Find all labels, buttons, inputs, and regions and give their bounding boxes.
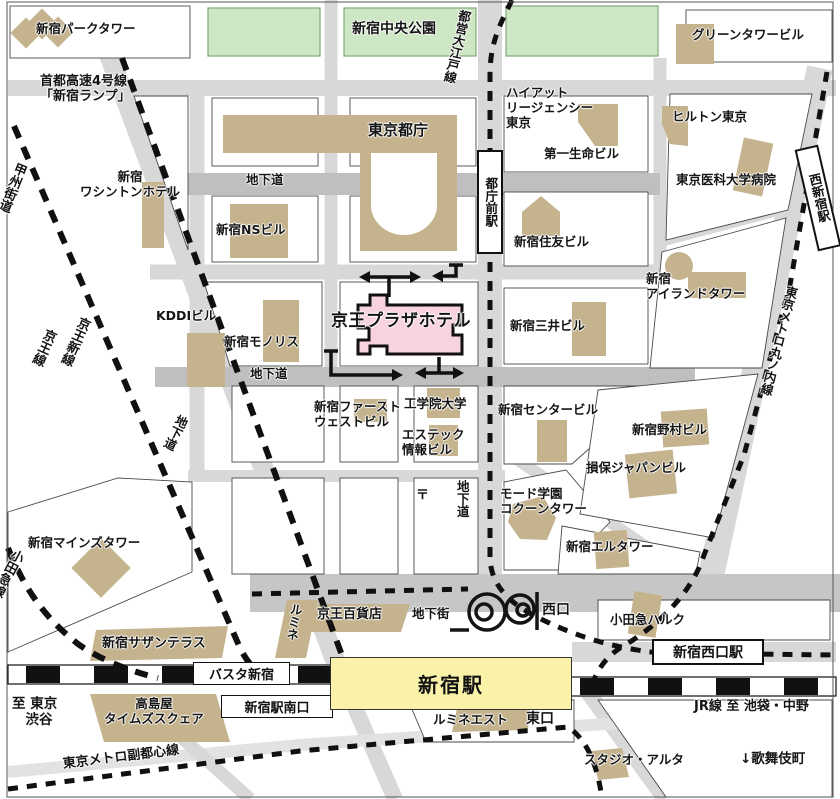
shinjuku-south-exit-box: 新宿駅南口 — [221, 695, 333, 718]
label-first-west: 新宿ファースト ウェストビル — [314, 400, 401, 430]
shinjuku-south-exit-label: 新宿駅南口 — [244, 697, 309, 716]
label-chikagai: 地下街 — [412, 607, 450, 622]
label-hyatt: ハイアット リージェンシー 東京 — [506, 86, 593, 130]
label-odakyu-halc: 小田急ハルク — [610, 613, 685, 628]
label-monolith: 新宿モノリス — [224, 335, 299, 350]
label-hilton: ヒルトン東京 — [672, 110, 747, 125]
busta-shinjuku-label: バスタ新宿 — [209, 664, 274, 683]
label-tocho: 東京都庁 — [368, 122, 428, 140]
shinjuku-nishiguchi-station-box: 新宿西口駅 — [652, 639, 764, 665]
shinjuku-station-block: 新宿駅 — [330, 657, 572, 710]
label-kogakuin: 工学院大学 — [404, 397, 467, 412]
center-building — [537, 420, 567, 462]
label-green-tower: グリーンタワービル — [692, 28, 804, 43]
label-keio-plaza: 京王プラザホテル — [331, 311, 471, 331]
tocho-courtyard — [371, 153, 437, 235]
label-daiichi-seimei: 第一生命ビル — [544, 147, 619, 162]
label-underpass-3: 地下道 — [454, 480, 469, 518]
label-island-tower: 新宿 アイランドタワー — [646, 272, 745, 302]
label-underpass-1: 地下道 — [246, 173, 284, 188]
shinjuku-station-label: 新宿駅 — [418, 669, 484, 698]
label-keio-dept: 京王百貨店 — [317, 607, 382, 622]
shinjuku-area-map: 新宿パークタワー 首都高速4号線 「新宿ランプ」 新宿中央公園 グリーンタワービ… — [0, 0, 840, 799]
monolith-building — [263, 300, 299, 362]
tochomae-station-box: 都庁前駅 — [477, 150, 503, 254]
label-nomura: 新宿野村ビル — [632, 423, 707, 438]
label-park-tower: 新宿パークタワー — [36, 22, 136, 37]
label-post-mark: 〒 — [416, 488, 429, 503]
label-higashiguchi: 東口 — [526, 711, 554, 728]
label-kabukicho: ↓歌舞伎町 — [740, 752, 805, 768]
label-to-tokyo-shibuya: 至 東京 渋谷 — [12, 697, 57, 729]
label-studio-alta: スタジオ・アルタ — [584, 753, 684, 768]
label-tokyo-medical: 東京医科大学病院 — [676, 173, 776, 188]
label-nishiguchi: 西口 — [542, 602, 570, 619]
label-center-bldg: 新宿センタービル — [498, 403, 598, 418]
label-chuo-park: 新宿中央公園 — [352, 21, 436, 38]
tochomae-station-label: 都庁前駅 — [484, 177, 497, 227]
label-sumitomo: 新宿住友ビル — [514, 235, 589, 250]
label-southern-terrace: 新宿サザンテラス — [102, 636, 206, 651]
label-shuto-expwy: 首都高速4号線 「新宿ランプ」 — [40, 74, 131, 105]
kddi-building — [187, 333, 225, 387]
label-el-tower: 新宿エルタワー — [566, 540, 654, 555]
label-ns-bldg: 新宿NSビル — [216, 223, 285, 238]
label-estec: エステック 情報ビル — [402, 428, 465, 458]
label-mainds: 新宿マインズタワー — [28, 536, 140, 551]
label-washington-hotel: 新宿 ワシントンホテル — [68, 170, 192, 200]
label-sompo: 損保ジャパンビル — [586, 461, 686, 476]
nishi-shinjuku-station-label: 西新宿駅 — [806, 172, 829, 224]
label-kddi: KDDIビル — [156, 309, 216, 324]
label-jr-to-ikebukuro: JR線 至 池袋・中野 — [694, 699, 809, 714]
label-mode-gakuen: モード学園 コクーンタワー — [500, 487, 587, 517]
label-underpass-2: 地下道 — [250, 367, 288, 382]
label-mitsui: 新宿三井ビル — [510, 319, 585, 334]
busta-shinjuku-box: バスタ新宿 — [193, 662, 290, 685]
shinjuku-nishiguchi-station-label: 新宿西口駅 — [673, 642, 743, 662]
label-lumine-est: ルミネエスト — [433, 713, 508, 728]
label-takashimaya: 高島屋 タイムズスクェア — [86, 697, 222, 727]
